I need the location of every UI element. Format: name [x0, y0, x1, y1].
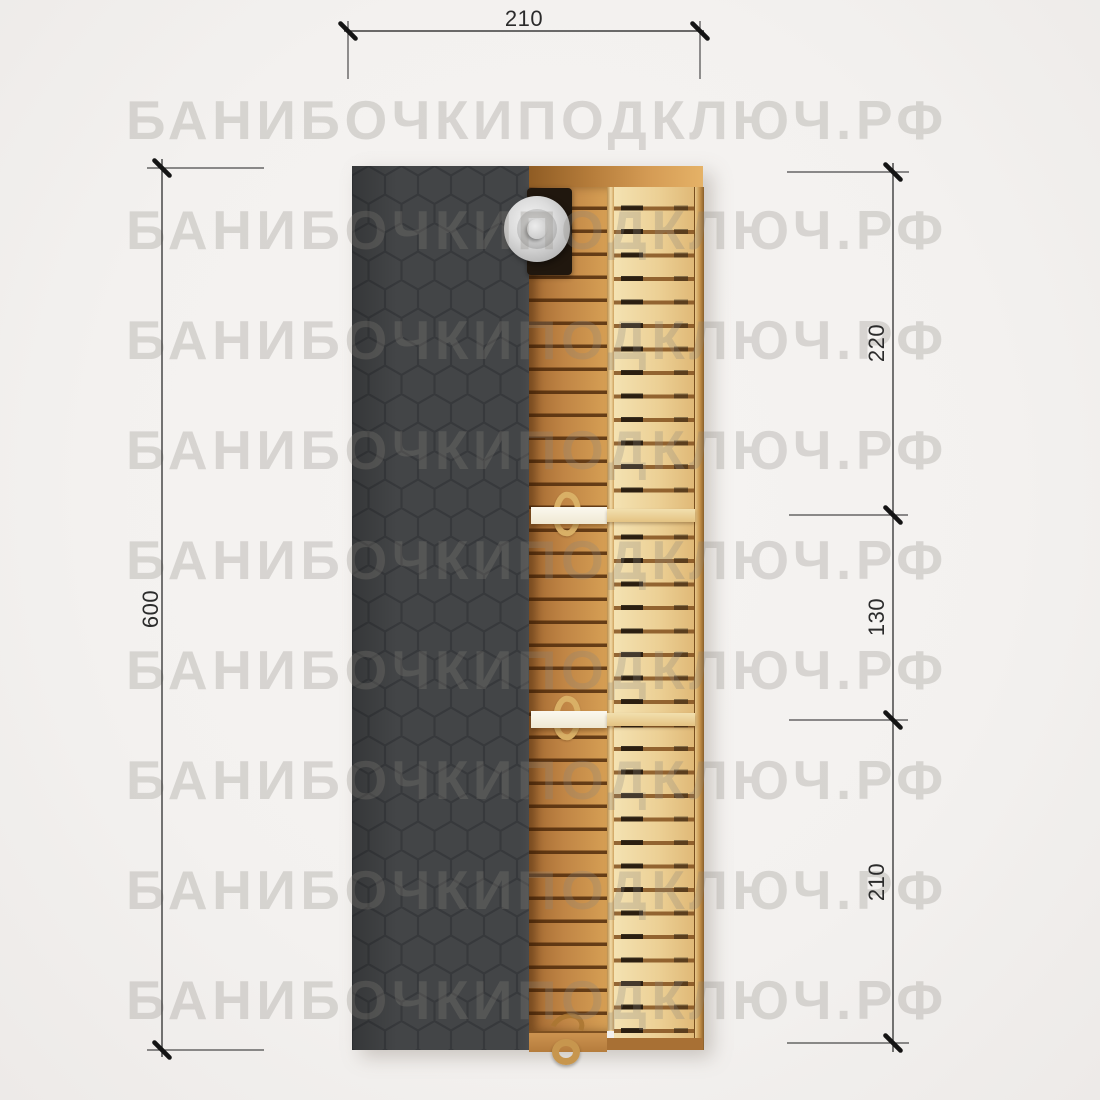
dimension-overlay: 210 600 220 130 210	[0, 0, 1100, 1100]
dim-label-right-segment-2: 130	[864, 598, 889, 636]
drawing-canvas: БАНИБОЧКИПОДКЛЮЧ.РФ БАНИБОЧКИПОДКЛЮЧ.РФ …	[0, 0, 1100, 1100]
dim-label-right-segment-1: 220	[864, 324, 889, 362]
dim-label-left-length: 600	[138, 590, 163, 628]
dim-label-top-width: 210	[505, 6, 543, 31]
dim-label-right-segment-3: 210	[864, 863, 889, 901]
